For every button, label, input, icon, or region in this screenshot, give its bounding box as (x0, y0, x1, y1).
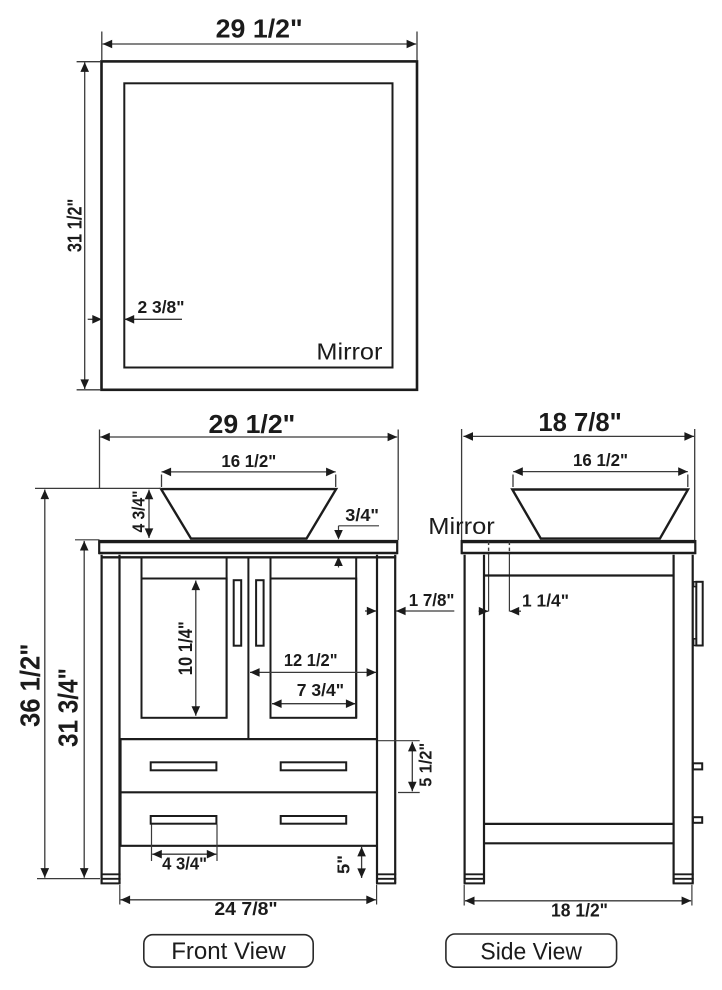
svg-text:16 1/2": 16 1/2" (221, 451, 276, 471)
svg-text:29 1/2": 29 1/2" (209, 409, 296, 439)
svg-text:Front View: Front View (171, 938, 286, 965)
svg-text:16 1/2": 16 1/2" (573, 450, 628, 470)
svg-text:10 1/4": 10 1/4" (176, 621, 197, 675)
svg-text:1 7/8": 1 7/8" (409, 590, 455, 610)
svg-text:4 3/4": 4 3/4" (162, 854, 207, 874)
svg-text:4 3/4": 4 3/4" (129, 491, 149, 533)
svg-text:36 1/2": 36 1/2" (14, 644, 45, 728)
svg-text:3/4": 3/4" (345, 505, 379, 525)
svg-text:Side View: Side View (480, 939, 582, 966)
svg-text:18 7/8": 18 7/8" (538, 407, 621, 437)
svg-text:18 1/2": 18 1/2" (551, 900, 608, 920)
svg-text:24 7/8": 24 7/8" (214, 899, 277, 919)
svg-text:2 3/8": 2 3/8" (138, 297, 185, 317)
svg-text:Mirror: Mirror (316, 338, 382, 364)
svg-text:5 1/2": 5 1/2" (416, 743, 436, 787)
svg-text:29 1/2": 29 1/2" (216, 14, 303, 44)
svg-text:1 1/4": 1 1/4" (522, 590, 569, 610)
svg-text:5": 5" (333, 855, 353, 874)
svg-text:12 1/2": 12 1/2" (284, 650, 338, 670)
svg-text:31 1/2": 31 1/2" (65, 199, 87, 253)
svg-text:Mirror: Mirror (428, 513, 495, 539)
svg-text:31 3/4": 31 3/4" (52, 668, 83, 747)
svg-text:7 3/4": 7 3/4" (297, 680, 344, 700)
